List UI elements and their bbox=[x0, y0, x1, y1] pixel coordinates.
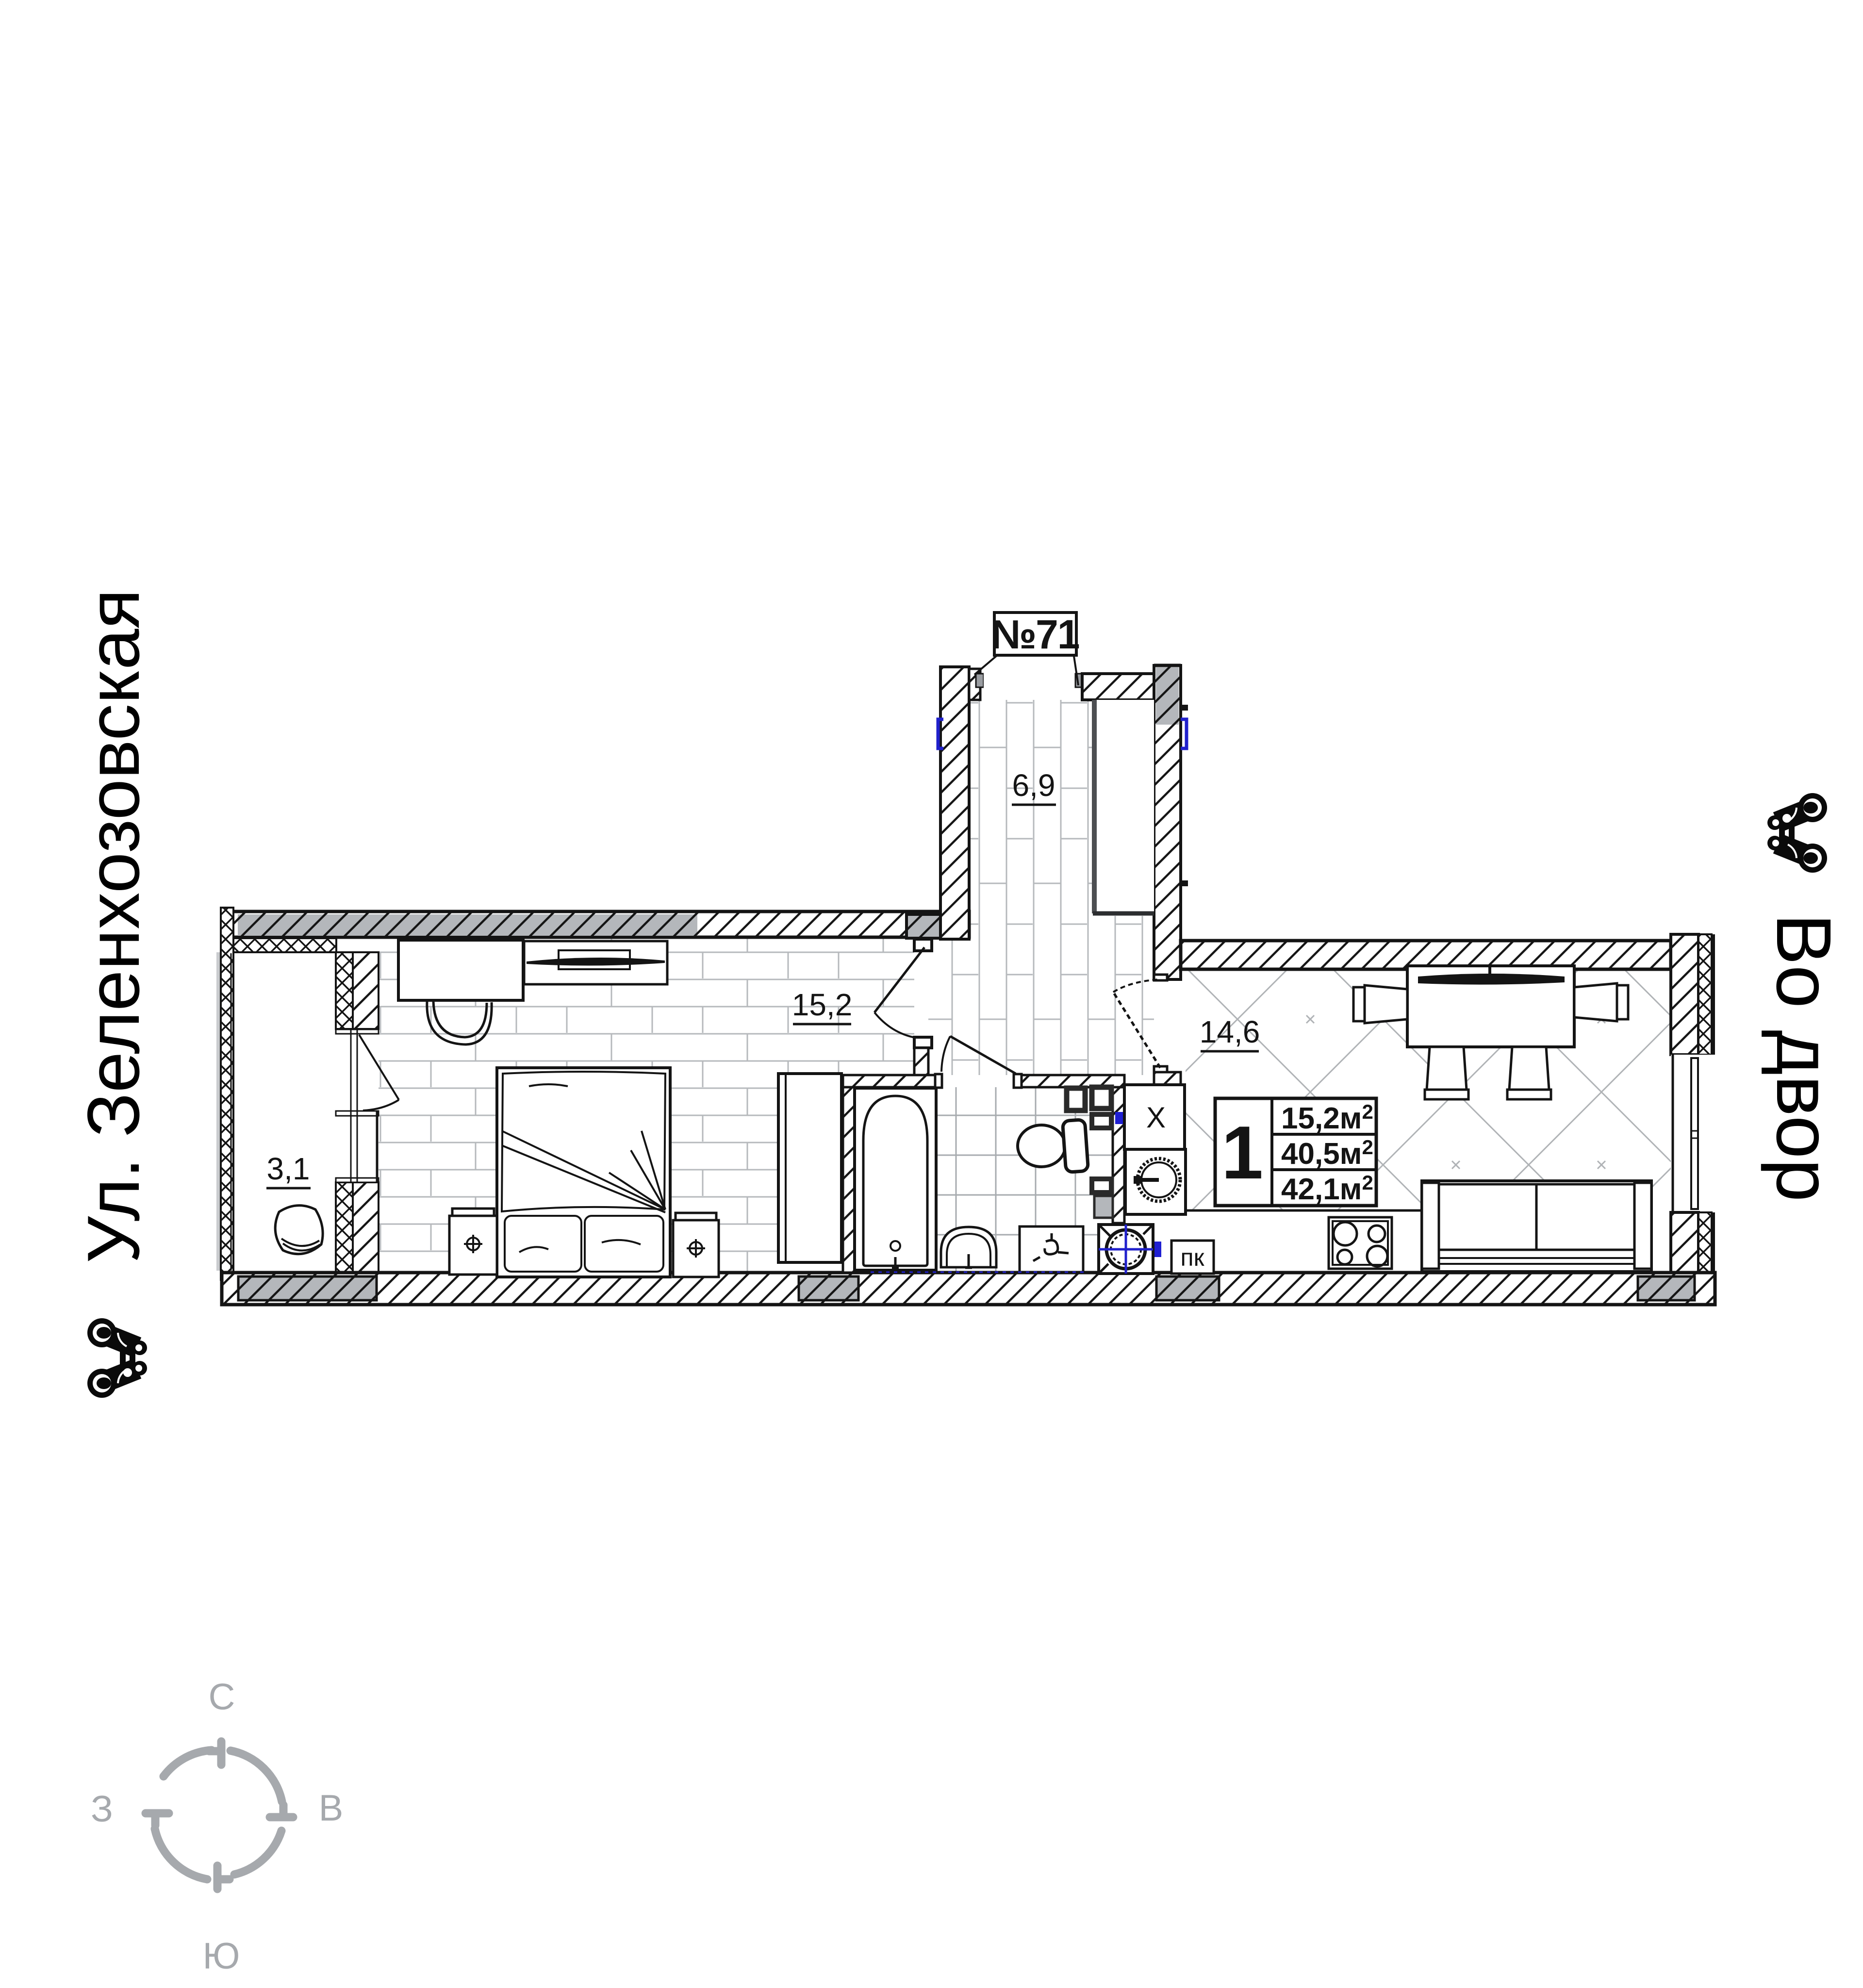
svg-text:40,5м2: 40,5м2 bbox=[1281, 1136, 1373, 1171]
svg-text:14,6: 14,6 bbox=[1200, 1014, 1260, 1049]
svg-text:Ул. Зеленхозовская: Ул. Зеленхозовская bbox=[72, 589, 155, 1263]
svg-text:Во двор: Во двор bbox=[1761, 913, 1847, 1202]
svg-text:X: X bbox=[1146, 1101, 1166, 1134]
svg-text:42,1м2: 42,1м2 bbox=[1281, 1171, 1373, 1206]
svg-text:15,2м2: 15,2м2 bbox=[1281, 1100, 1373, 1135]
svg-text:В: В bbox=[319, 1788, 344, 1829]
svg-text:С: С bbox=[209, 1676, 235, 1718]
svg-text:3,1: 3,1 bbox=[267, 1151, 310, 1186]
svg-text:6,9: 6,9 bbox=[1012, 768, 1055, 803]
svg-text:З: З bbox=[91, 1789, 113, 1830]
svg-text:пк: пк bbox=[1181, 1244, 1205, 1271]
svg-text:Ю: Ю bbox=[203, 1936, 240, 1977]
svg-text:1: 1 bbox=[1221, 1110, 1263, 1194]
svg-text:№71: №71 bbox=[991, 612, 1079, 657]
svg-text:15,2: 15,2 bbox=[792, 987, 853, 1022]
